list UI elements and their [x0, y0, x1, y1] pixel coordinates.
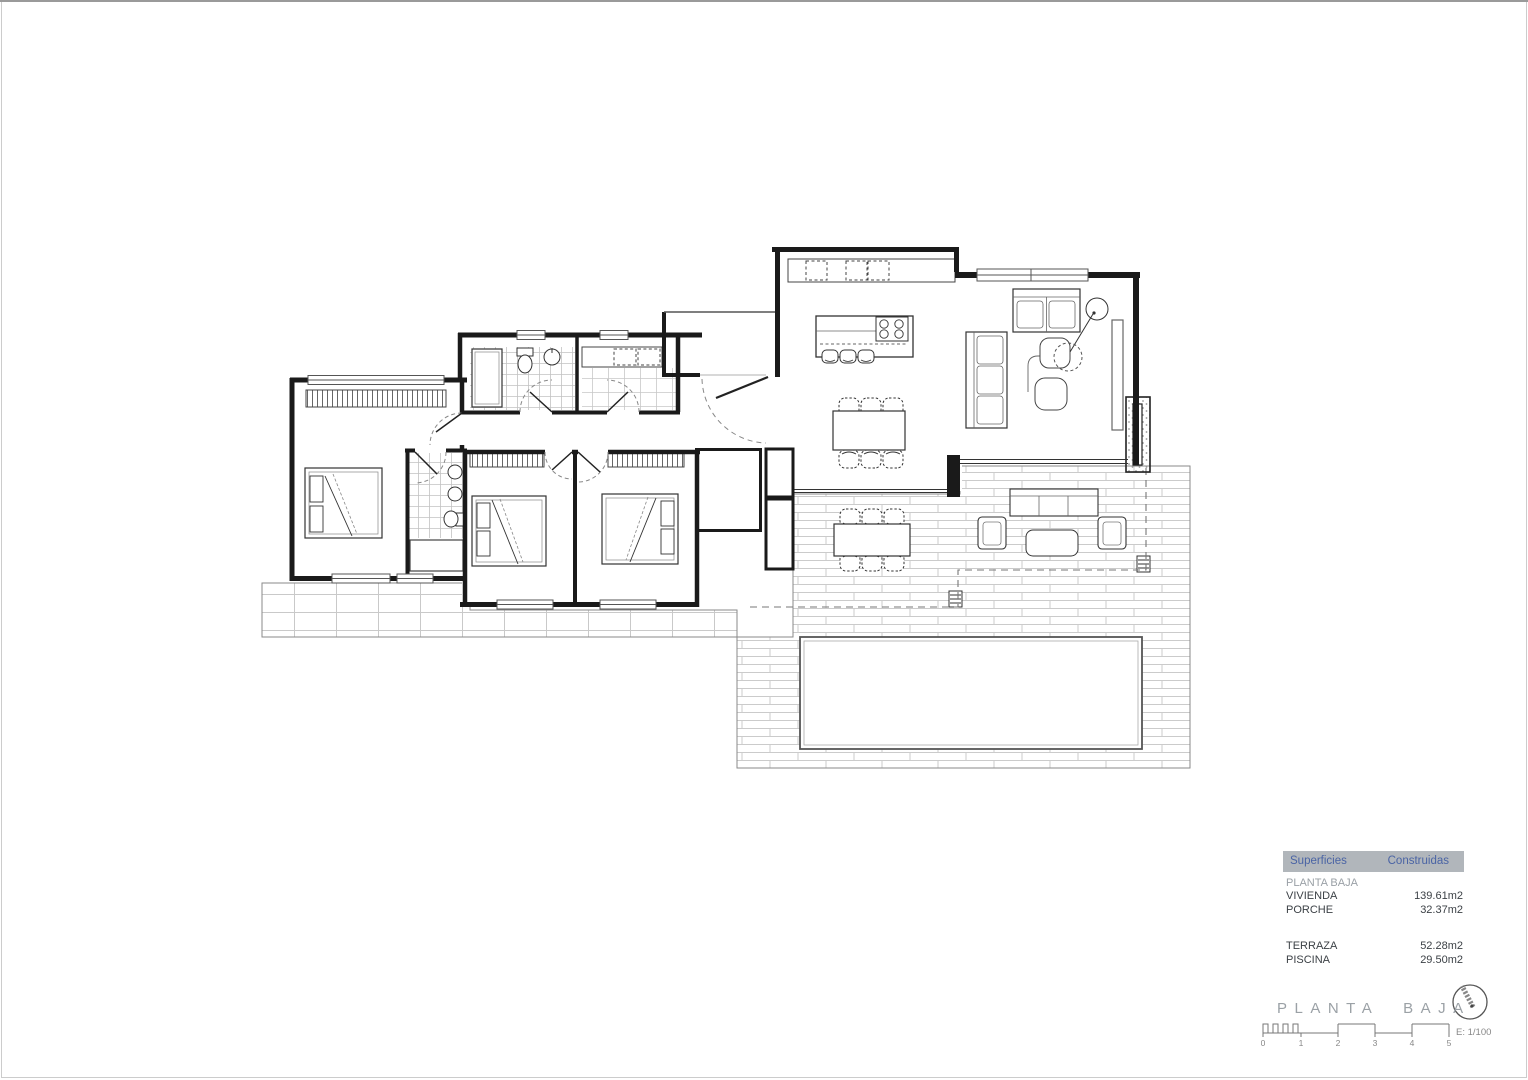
- sofa-3seat: [966, 332, 1007, 428]
- porch-columns: [766, 449, 793, 569]
- row-label: TERRAZA: [1286, 939, 1337, 953]
- kitchen-island: [816, 316, 913, 363]
- plan-sheet: 0 1 2 3 4 5 E: 1/100 Superficies Constru…: [0, 0, 1528, 1080]
- outdoor-dining-set: [834, 509, 910, 571]
- tv-panel: [1112, 320, 1123, 430]
- scale-number: 1: [1299, 1038, 1304, 1048]
- row-value: 32.37m2: [1420, 903, 1463, 917]
- scale-number: 2: [1336, 1038, 1341, 1048]
- scale-ratio-label: E: 1/100: [1456, 1027, 1491, 1038]
- table-row: PISCINA 29.50m2: [1283, 953, 1464, 967]
- dining-set: [833, 398, 905, 468]
- scale-number: 0: [1261, 1038, 1266, 1048]
- table-header-superficies: Superficies: [1290, 851, 1347, 872]
- row-value: 139.61m2: [1414, 889, 1463, 903]
- table-row: PORCHE 32.37m2: [1283, 903, 1464, 917]
- scale-number: 3: [1373, 1038, 1378, 1048]
- outdoor-table: [834, 524, 910, 556]
- table-header: Superficies Construidas: [1283, 851, 1464, 872]
- shower: [472, 349, 502, 407]
- table-header-construidas: Construidas: [1388, 851, 1449, 872]
- row-value: 52.28m2: [1420, 939, 1463, 953]
- table-row: VIVIENDA 139.61m2: [1283, 889, 1464, 903]
- dining-table: [833, 411, 905, 450]
- row-label: VIVIENDA: [1286, 889, 1337, 903]
- row-label: PORCHE: [1286, 903, 1333, 917]
- areas-summary-table: Superficies Construidas PLANTA BAJA VIVI…: [1283, 851, 1464, 967]
- outdoor-sofa: [1010, 489, 1098, 516]
- table-row: TERRAZA 52.28m2: [1283, 939, 1464, 953]
- closet: [410, 540, 463, 571]
- scale-bar: 0 1 2 3 4 5 E: 1/100: [1261, 1024, 1492, 1048]
- toilet-icon: [444, 511, 458, 527]
- kitchen-counter: [788, 259, 955, 282]
- sink-icon: [448, 487, 462, 501]
- sink-icon: [448, 465, 462, 479]
- pouf: [1040, 338, 1070, 368]
- cooktop-icon: [876, 317, 908, 341]
- pillar: [947, 455, 960, 497]
- bed-3: [602, 494, 678, 564]
- living-windows: [977, 269, 1088, 281]
- pool: [800, 637, 1142, 749]
- sheet-title: PLANTA BAJA: [1277, 1000, 1471, 1017]
- pouf: [1035, 378, 1067, 410]
- laundry-counter: [582, 347, 662, 367]
- bed-master: [305, 468, 382, 538]
- toilet-icon: [518, 355, 532, 373]
- bed-2: [472, 496, 546, 566]
- laundry-floor: [582, 368, 676, 410]
- table-section-label: PLANTA BAJA: [1283, 877, 1464, 889]
- scale-number: 5: [1447, 1038, 1452, 1048]
- row-label: PISCINA: [1286, 953, 1330, 967]
- scale-number: 4: [1410, 1038, 1415, 1048]
- row-value: 29.50m2: [1420, 953, 1463, 967]
- coffee-table: [1026, 530, 1078, 556]
